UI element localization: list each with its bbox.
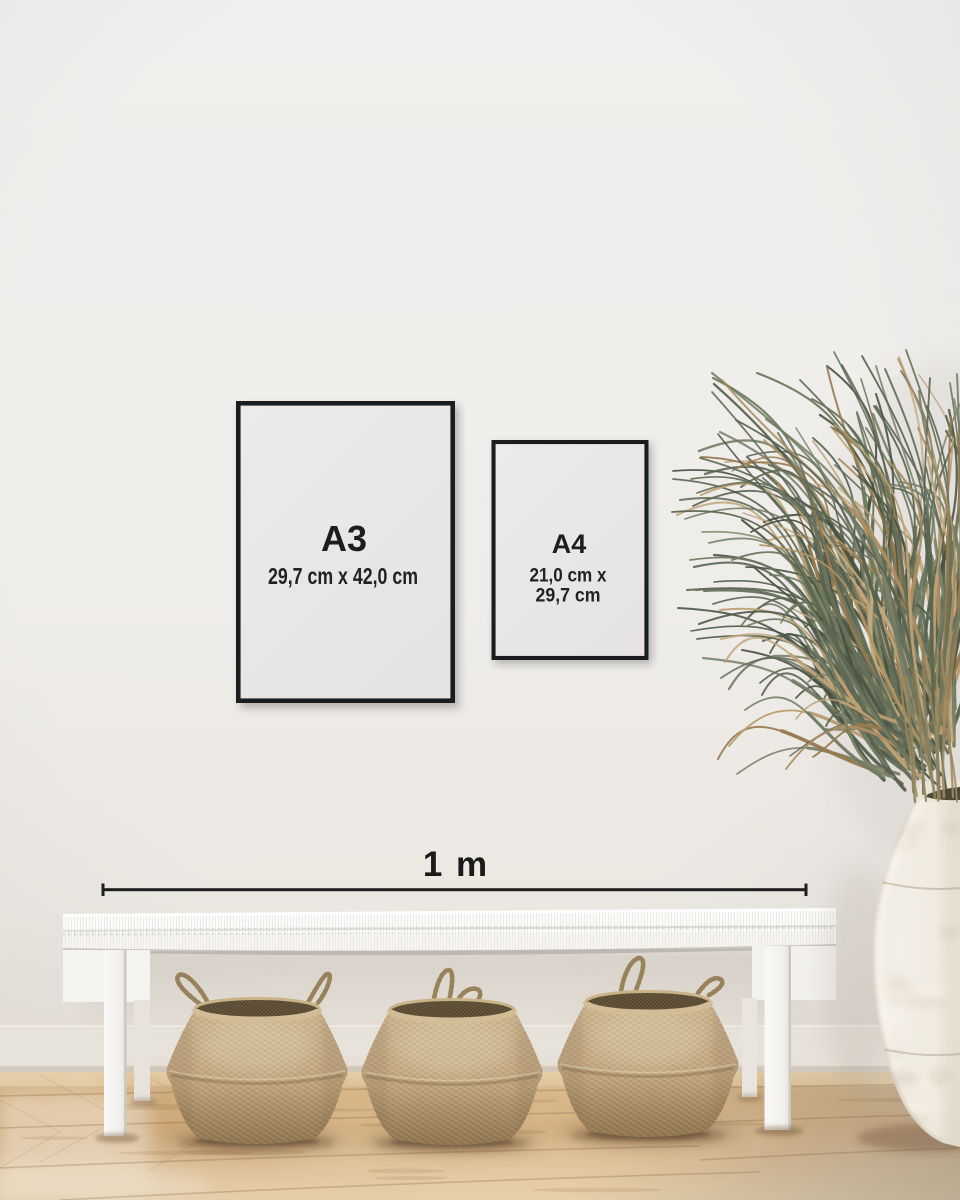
svg-text:A4: A4 bbox=[552, 529, 587, 559]
svg-text:A3: A3 bbox=[321, 518, 367, 559]
svg-text:29,7 cm x 42,0 cm: 29,7 cm x 42,0 cm bbox=[268, 563, 418, 589]
svg-text:29,7 cm: 29,7 cm bbox=[536, 586, 601, 607]
svg-text:21,0 cm x: 21,0 cm x bbox=[530, 566, 607, 587]
svg-text:1 m: 1 m bbox=[423, 845, 489, 884]
